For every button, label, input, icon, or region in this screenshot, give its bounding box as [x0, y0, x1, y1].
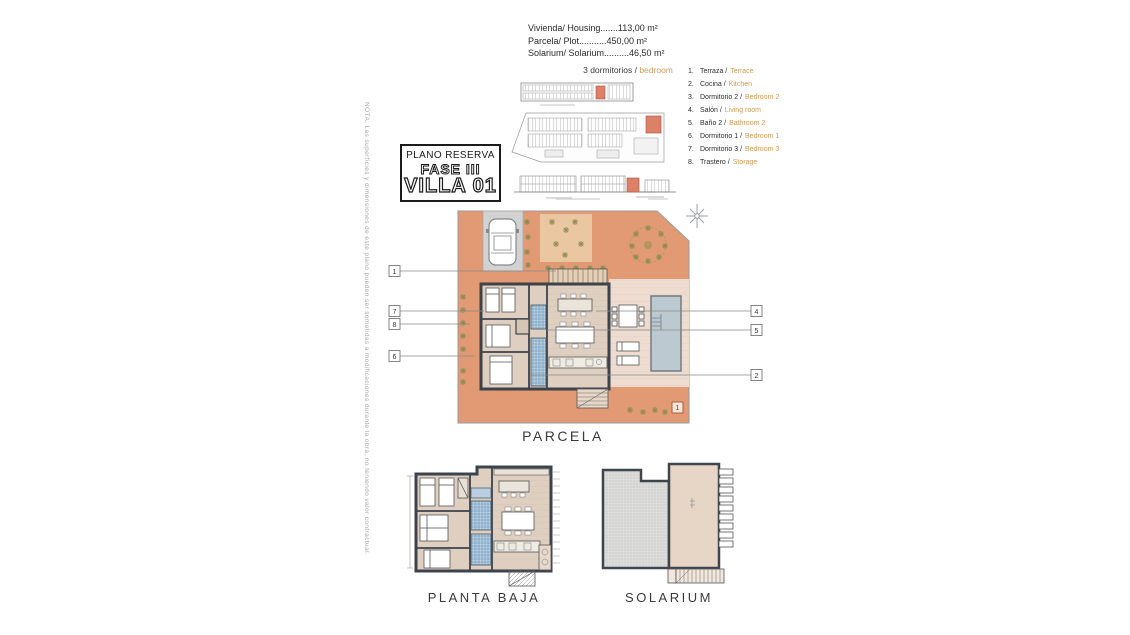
housing-area: Vivienda/ Housing.......113,00 m²: [528, 22, 665, 35]
compass-icon: [686, 204, 708, 228]
house-footprint: [481, 284, 609, 389]
pool: [651, 296, 681, 371]
roof-gravel: [603, 470, 669, 568]
keyplan-elevation: [514, 176, 676, 199]
highlight-unit: [646, 116, 661, 133]
wc: [471, 488, 491, 498]
solarium-plan: [603, 464, 733, 583]
plot-area: Parcela/ Plot...........450,00 m²: [528, 35, 665, 48]
solarium-area: Solarium/ Solarium..........46,50 m²: [528, 47, 665, 60]
plan-sheet: NOTA: Las superficies y dimensiones de e…: [0, 0, 1130, 635]
callout-7: 7: [393, 309, 397, 316]
kitchen-counter: [549, 357, 607, 368]
keyplan-site: [512, 113, 664, 162]
bathroom-2: [471, 534, 491, 565]
highlight-unit: [627, 178, 639, 192]
bathroom-2: [531, 338, 546, 386]
svg-text:1: 1: [676, 405, 680, 412]
parcela-plan: 1 1 7 8 6 4: [389, 197, 762, 423]
outdoor-dining: [612, 305, 644, 327]
keyplan-strip: [521, 83, 633, 105]
callout-6: 6: [393, 354, 397, 361]
callout-4: 4: [755, 309, 759, 316]
callout-terraza-inner: 1: [672, 402, 683, 413]
callout-5: 5: [755, 328, 759, 335]
callout-2: 2: [755, 373, 759, 380]
pergola-slats: [719, 469, 733, 547]
stairs: [509, 571, 535, 586]
surface-summary: Vivienda/ Housing.......113,00 m² Parcel…: [528, 22, 665, 60]
plans-drawing: 1 1 7 8 6 4: [350, 60, 790, 600]
bathroom: [531, 305, 546, 329]
bathroom: [471, 501, 491, 530]
highlight-unit: [596, 86, 605, 99]
callout-1: 1: [393, 269, 397, 276]
trastero-room: [516, 319, 529, 334]
stairs: [668, 569, 724, 583]
planta-baja-plan: [407, 467, 560, 586]
car-icon: [486, 219, 519, 265]
stairs: [577, 389, 608, 408]
callout-8: 8: [393, 322, 397, 329]
edge-ticks: [552, 472, 560, 563]
solarium-terrace: [669, 464, 719, 568]
keyplan-elevation-small: [645, 180, 669, 192]
